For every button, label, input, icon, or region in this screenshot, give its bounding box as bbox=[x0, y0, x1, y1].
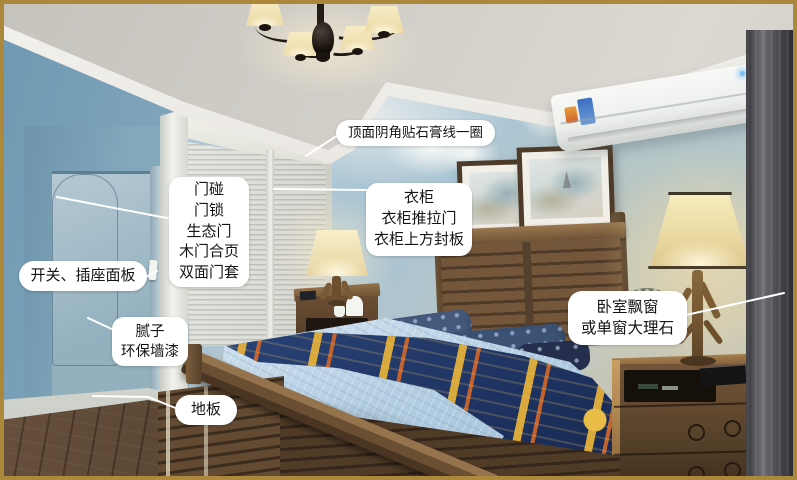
chandelier-body bbox=[312, 22, 334, 56]
annotation-line: 或单窗大理石 bbox=[581, 318, 674, 339]
door-casing bbox=[150, 166, 161, 408]
annotation-line: 衣柜上方封板 bbox=[374, 230, 464, 251]
drawer-ring-handle bbox=[724, 420, 741, 437]
drawer-ring-handle bbox=[724, 462, 741, 479]
lamp-shade-rim bbox=[668, 192, 732, 195]
cup bbox=[334, 306, 345, 317]
ac-power-led bbox=[740, 71, 746, 77]
annotation-line: 门锁 bbox=[194, 201, 224, 222]
annotation-floor: 地板 bbox=[175, 395, 237, 425]
annotation-line: 衣柜 bbox=[404, 188, 434, 209]
chandelier-fitting bbox=[295, 54, 306, 61]
annotation-text: 顶面阴角贴石膏线一圈 bbox=[348, 124, 483, 143]
footboard-post bbox=[186, 344, 202, 384]
annotation-line: 卧室飘窗 bbox=[596, 297, 658, 318]
door-panel bbox=[52, 174, 118, 268]
chandelier-fitting bbox=[259, 24, 271, 31]
lamp-base bbox=[692, 270, 703, 362]
valet-box bbox=[699, 364, 746, 386]
annotation-wall-finish: 腻子 环保墙漆 bbox=[112, 317, 188, 366]
annotation-line: 衣柜推拉门 bbox=[381, 209, 456, 230]
drawer-ring-handle bbox=[688, 466, 705, 480]
remote-control bbox=[662, 386, 678, 390]
annotation-wardrobe: 衣柜 衣柜推拉门 衣柜上方封板 bbox=[366, 183, 472, 256]
door-frame-gap bbox=[52, 171, 150, 174]
chandelier-fitting bbox=[378, 31, 390, 38]
lamp-shade-rim bbox=[648, 266, 752, 269]
chandelier-finial bbox=[316, 52, 330, 62]
lamp-base bbox=[332, 276, 341, 302]
annotation-bay-window: 卧室飘窗 或单窗大理石 bbox=[568, 291, 687, 345]
annotation-text: 地板 bbox=[191, 400, 221, 421]
chandelier-fitting bbox=[352, 48, 363, 55]
annotation-line: 腻子 bbox=[136, 322, 165, 342]
wardrobe-door-divider bbox=[266, 150, 274, 346]
remote-control bbox=[638, 384, 658, 389]
annotation-door-parts: 门碰 门锁 生态门 木门合页 双面门套 bbox=[169, 177, 249, 287]
annotation-line: 木门合页 bbox=[179, 242, 239, 263]
lamp-foot bbox=[680, 356, 716, 366]
annotated-bedroom-photo: 顶面阴角贴石膏线一圈 门碰 门锁 生态门 木门合页 双面门套 开关、插座面板 腻… bbox=[0, 0, 797, 480]
eiffel-sketch bbox=[563, 171, 572, 188]
annotation-line: 环保墙漆 bbox=[121, 342, 179, 362]
annotation-switch-panel: 开关、插座面板 bbox=[19, 261, 147, 291]
nightstand-clock bbox=[300, 290, 317, 300]
annotation-line: 门碰 bbox=[194, 180, 224, 201]
annotation-line: 生态门 bbox=[186, 222, 231, 243]
annotation-ceiling-molding: 顶面阴角贴石膏线一圈 bbox=[336, 120, 495, 146]
wall-switch-plate bbox=[148, 260, 157, 281]
window-curtain bbox=[746, 30, 793, 480]
annotation-line: 双面门套 bbox=[179, 263, 239, 284]
picture-art bbox=[529, 157, 603, 219]
drawer-ring-handle bbox=[688, 424, 705, 441]
annotation-text: 开关、插座面板 bbox=[30, 266, 135, 287]
lamp-foot bbox=[328, 300, 346, 306]
